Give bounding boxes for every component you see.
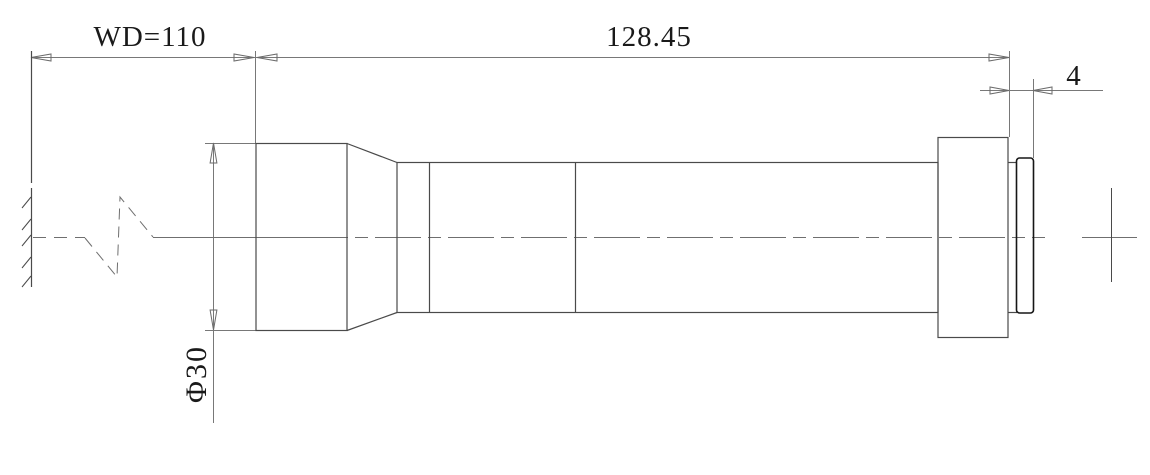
hatch-line (22, 276, 31, 287)
dim-back-offset-label: 4 (1066, 60, 1082, 92)
dimension-arrowheads (31, 54, 1052, 330)
lens-technical-drawing: WD=110 128.45 4 Φ30 (0, 0, 1150, 475)
hatch-line (22, 235, 31, 246)
hatch-line (22, 219, 31, 230)
dim-length-label: 128.45 (606, 21, 692, 53)
dim-working-distance-label: WD=110 (93, 21, 206, 53)
wall-hatching (22, 197, 31, 287)
optical-axis-break (85, 197, 153, 277)
optical-axis (33, 197, 1137, 277)
dim-diameter-label: Φ30 (180, 345, 213, 403)
rear-ring (1017, 158, 1034, 313)
taper-top-edge (347, 144, 397, 163)
taper-bottom-edge (347, 313, 397, 331)
object-plane-wall (22, 51, 32, 287)
drawing-canvas: WD=110 128.45 4 Φ30 (0, 0, 1150, 475)
hatch-line (22, 257, 31, 268)
hatch-line (22, 197, 31, 208)
